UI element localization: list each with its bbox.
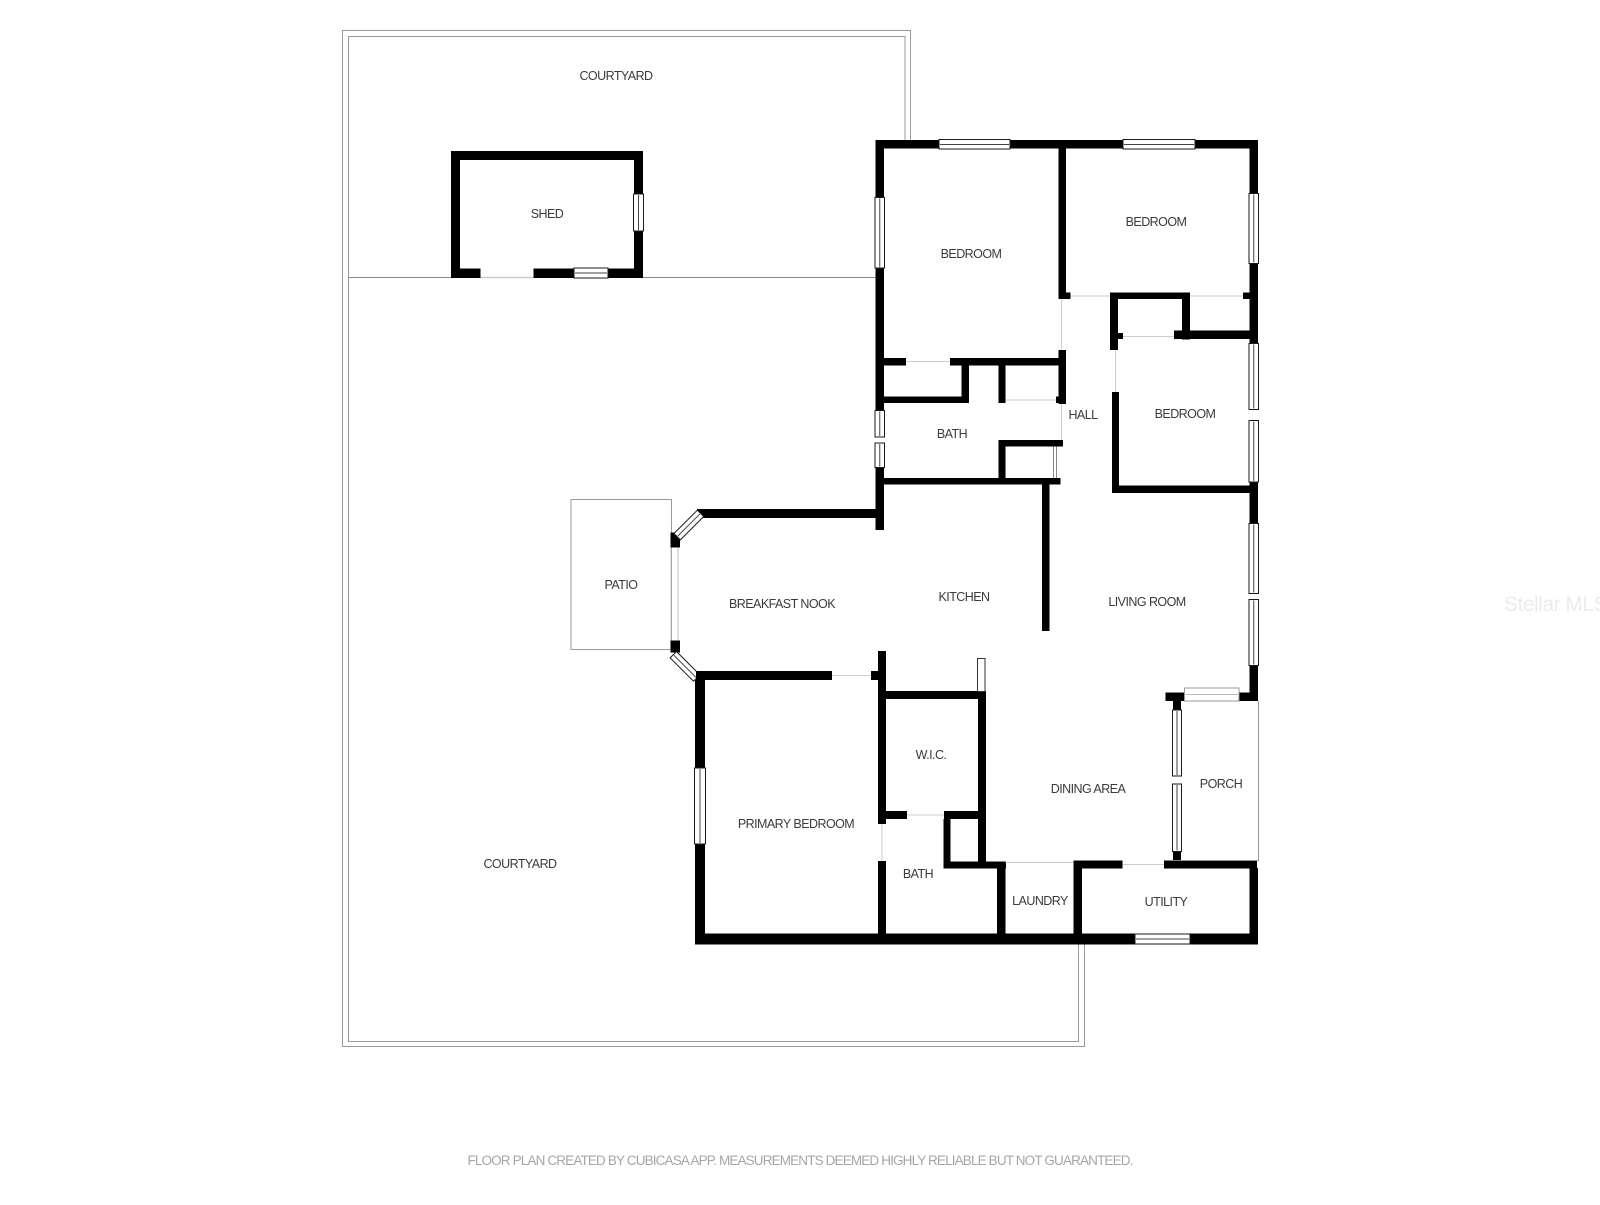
svg-text:Stellar MLS: Stellar MLS [1504, 593, 1600, 616]
svg-text:LAUNDRY: LAUNDRY [1012, 894, 1069, 908]
svg-text:SHED: SHED [531, 207, 564, 221]
svg-text:KITCHEN: KITCHEN [938, 590, 990, 604]
svg-text:HALL: HALL [1068, 408, 1098, 422]
svg-text:W.I.C.: W.I.C. [916, 748, 947, 762]
svg-text:COURTYARD: COURTYARD [483, 857, 557, 871]
svg-text:BREAKFAST NOOK: BREAKFAST NOOK [729, 597, 836, 611]
svg-text:UTILITY: UTILITY [1145, 895, 1189, 909]
svg-text:PORCH: PORCH [1200, 777, 1243, 791]
svg-text:BEDROOM: BEDROOM [941, 247, 1002, 261]
svg-text:LIVING ROOM: LIVING ROOM [1108, 595, 1185, 609]
svg-text:PRIMARY BEDROOM: PRIMARY BEDROOM [738, 817, 854, 831]
svg-text:BEDROOM: BEDROOM [1155, 407, 1216, 421]
svg-text:BEDROOM: BEDROOM [1126, 215, 1187, 229]
svg-text:COURTYARD: COURTYARD [579, 69, 653, 83]
svg-text:BATH: BATH [937, 427, 968, 441]
svg-text:DINING AREA: DINING AREA [1051, 782, 1127, 796]
svg-text:FLOOR PLAN CREATED BY CUBICASA: FLOOR PLAN CREATED BY CUBICASA APP. MEAS… [467, 1153, 1132, 1168]
svg-text:PATIO: PATIO [605, 578, 639, 592]
svg-text:BATH: BATH [903, 867, 934, 881]
